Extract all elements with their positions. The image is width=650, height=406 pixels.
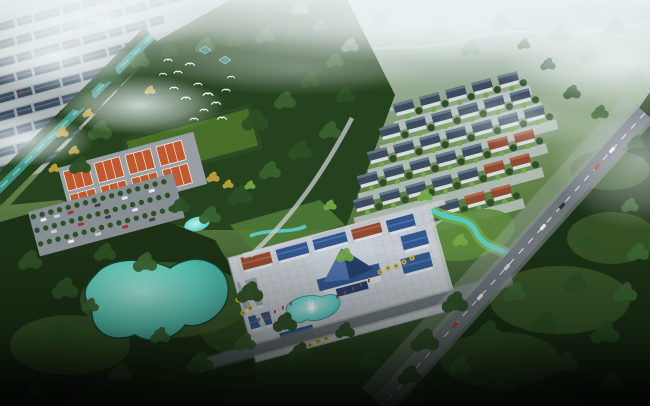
vignette [0, 250, 650, 406]
fog-wisp [430, 92, 610, 148]
rendering-canvas [0, 0, 650, 406]
fog-wisp [170, 44, 430, 96]
aerial-masterplan-rendering [0, 0, 650, 406]
